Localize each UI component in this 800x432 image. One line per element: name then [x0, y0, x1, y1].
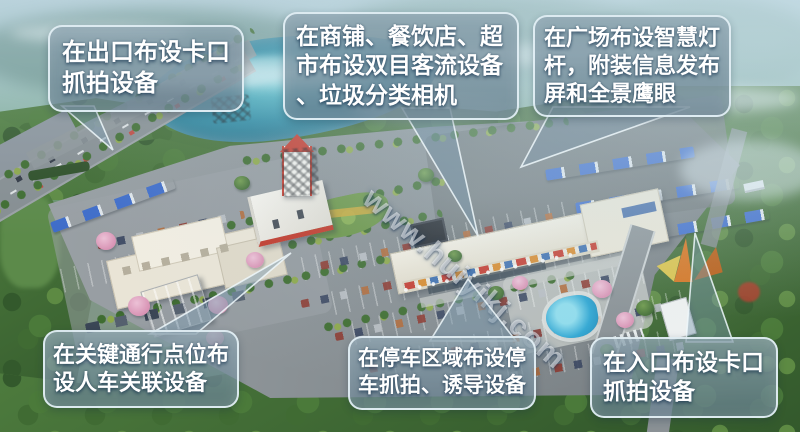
- callout-line: 、垃圾分类相机: [296, 81, 506, 110]
- callout-tail-entrance: [686, 233, 733, 342]
- callout-line: 市布设双目客流设备: [296, 51, 506, 80]
- callout-line: 抓拍设备: [62, 69, 230, 100]
- callout-line: 在广场布设智慧灯: [544, 24, 720, 52]
- callout-line: 在关键通行点位布: [53, 341, 229, 369]
- callout-tail-parking: [430, 279, 516, 341]
- callout-plaza-smart-pole: 在广场布设智慧灯 杆，附装信息发布 屏和全景鹰眼: [533, 15, 731, 117]
- callout-line: 在入口布设卡口: [603, 348, 765, 377]
- callout-line: 抓拍设备: [603, 377, 765, 406]
- callout-shop-passenger-flow: 在商铺、餐饮店、超 市布设双目客流设备 、垃圾分类相机: [283, 12, 519, 120]
- callout-line: 在商铺、餐饮店、超: [296, 22, 506, 51]
- callout-line: 在出口布设卡口: [62, 38, 230, 69]
- service-area-aerial-diagram: www.huiyikj.com 在出口布设卡口 抓拍设备 在商铺、餐饮店、超 市…: [0, 0, 800, 432]
- callout-tail-key-points: [150, 253, 291, 334]
- callout-entrance-capture: 在入口布设卡口 抓拍设备: [590, 337, 778, 418]
- callout-exit-capture: 在出口布设卡口 抓拍设备: [48, 25, 244, 112]
- callout-line: 在停车区域布设停: [358, 346, 526, 373]
- callout-tail-shops: [402, 108, 478, 236]
- callout-key-passage-points: 在关键通行点位布 设人车关联设备: [43, 330, 239, 408]
- callout-line: 设人车关联设备: [53, 369, 229, 397]
- callout-line: 车抓拍、诱导设备: [358, 373, 526, 400]
- callout-parking-capture: 在停车区域布设停 车抓拍、诱导设备: [348, 336, 536, 410]
- callout-line: 屏和全景鹰眼: [544, 80, 720, 108]
- callout-line: 杆，附装信息发布: [544, 52, 720, 80]
- callout-tail-exit: [62, 106, 113, 150]
